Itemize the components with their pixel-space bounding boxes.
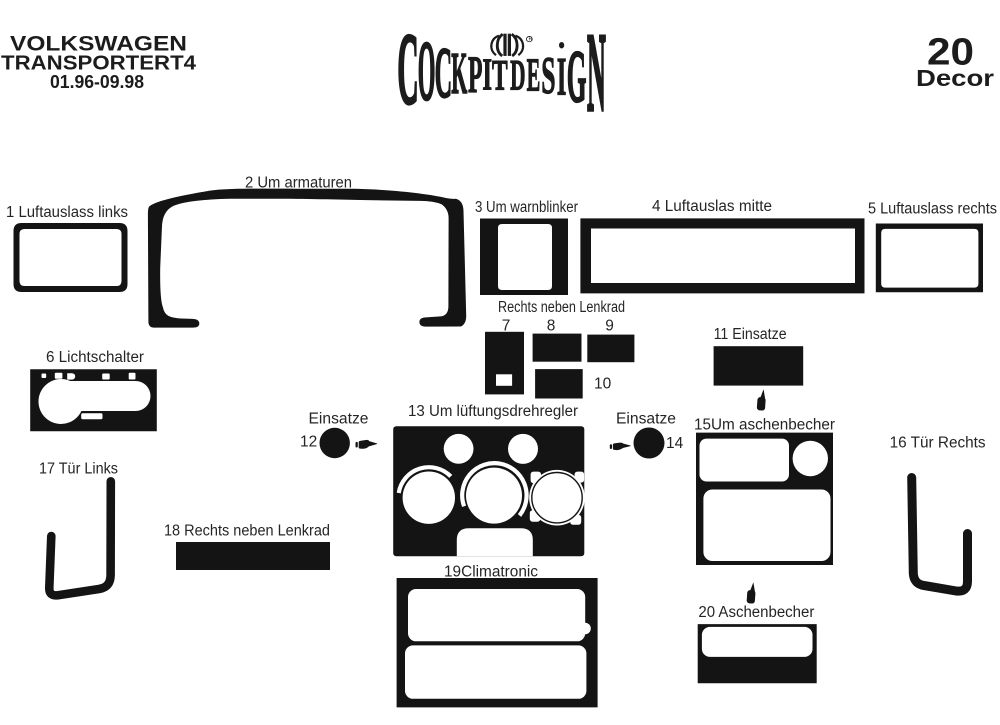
svg-text:8: 8 — [547, 318, 556, 335]
svg-text:11 Einsatze: 11 Einsatze — [714, 326, 787, 343]
svg-text:19Climatronic: 19Climatronic — [444, 564, 538, 581]
svg-text:S: S — [541, 46, 555, 104]
svg-text:16 Tür Rechts: 16 Tür Rechts — [890, 435, 986, 452]
svg-text:4 Luftauslas mitte: 4 Luftauslas mitte — [652, 198, 772, 215]
svg-text:Decor: Decor — [916, 65, 994, 91]
svg-text:Einsatze: Einsatze — [309, 411, 369, 428]
svg-text:18 Rechts neben Lenkrad: 18 Rechts neben Lenkrad — [164, 523, 330, 540]
svg-text:C: C — [397, 13, 418, 126]
svg-text:I: I — [482, 49, 492, 100]
svg-text:E: E — [527, 49, 541, 101]
svg-text:10: 10 — [594, 376, 612, 393]
svg-text:P: P — [468, 46, 482, 104]
svg-text:R: R — [529, 36, 533, 42]
svg-text:K: K — [451, 40, 467, 107]
svg-text:N: N — [587, 9, 606, 134]
svg-text:17 Tür Links: 17 Tür Links — [39, 461, 118, 478]
svg-text:1 Luftauslass links: 1 Luftauslass links — [6, 204, 128, 221]
svg-text:20 Aschenbecher: 20 Aschenbecher — [698, 604, 814, 621]
svg-text:15Um aschenbecher: 15Um aschenbecher — [694, 417, 835, 434]
svg-text:6 Lichtschalter: 6 Lichtschalter — [46, 349, 144, 366]
svg-text:14: 14 — [666, 435, 684, 452]
svg-text:5 Luftauslass rechts: 5 Luftauslass rechts — [868, 201, 997, 218]
svg-text:01.96-09.98: 01.96-09.98 — [50, 71, 144, 92]
svg-text:3 Um warnblinker: 3 Um warnblinker — [475, 199, 578, 216]
svg-text:D: D — [510, 52, 525, 100]
svg-text:9: 9 — [605, 318, 614, 335]
svg-text:12: 12 — [300, 434, 317, 451]
svg-text:G: G — [567, 36, 587, 118]
svg-text:O: O — [418, 24, 435, 118]
svg-text:13 Um lüftungsdrehregler: 13 Um lüftungsdrehregler — [408, 403, 578, 420]
svg-text:Rechts neben Lenkrad: Rechts neben Lenkrad — [498, 299, 625, 316]
svg-text:Einsatze: Einsatze — [616, 411, 676, 428]
svg-text:T: T — [492, 51, 508, 100]
svg-text:I: I — [557, 48, 567, 107]
svg-text:C: C — [435, 32, 452, 113]
